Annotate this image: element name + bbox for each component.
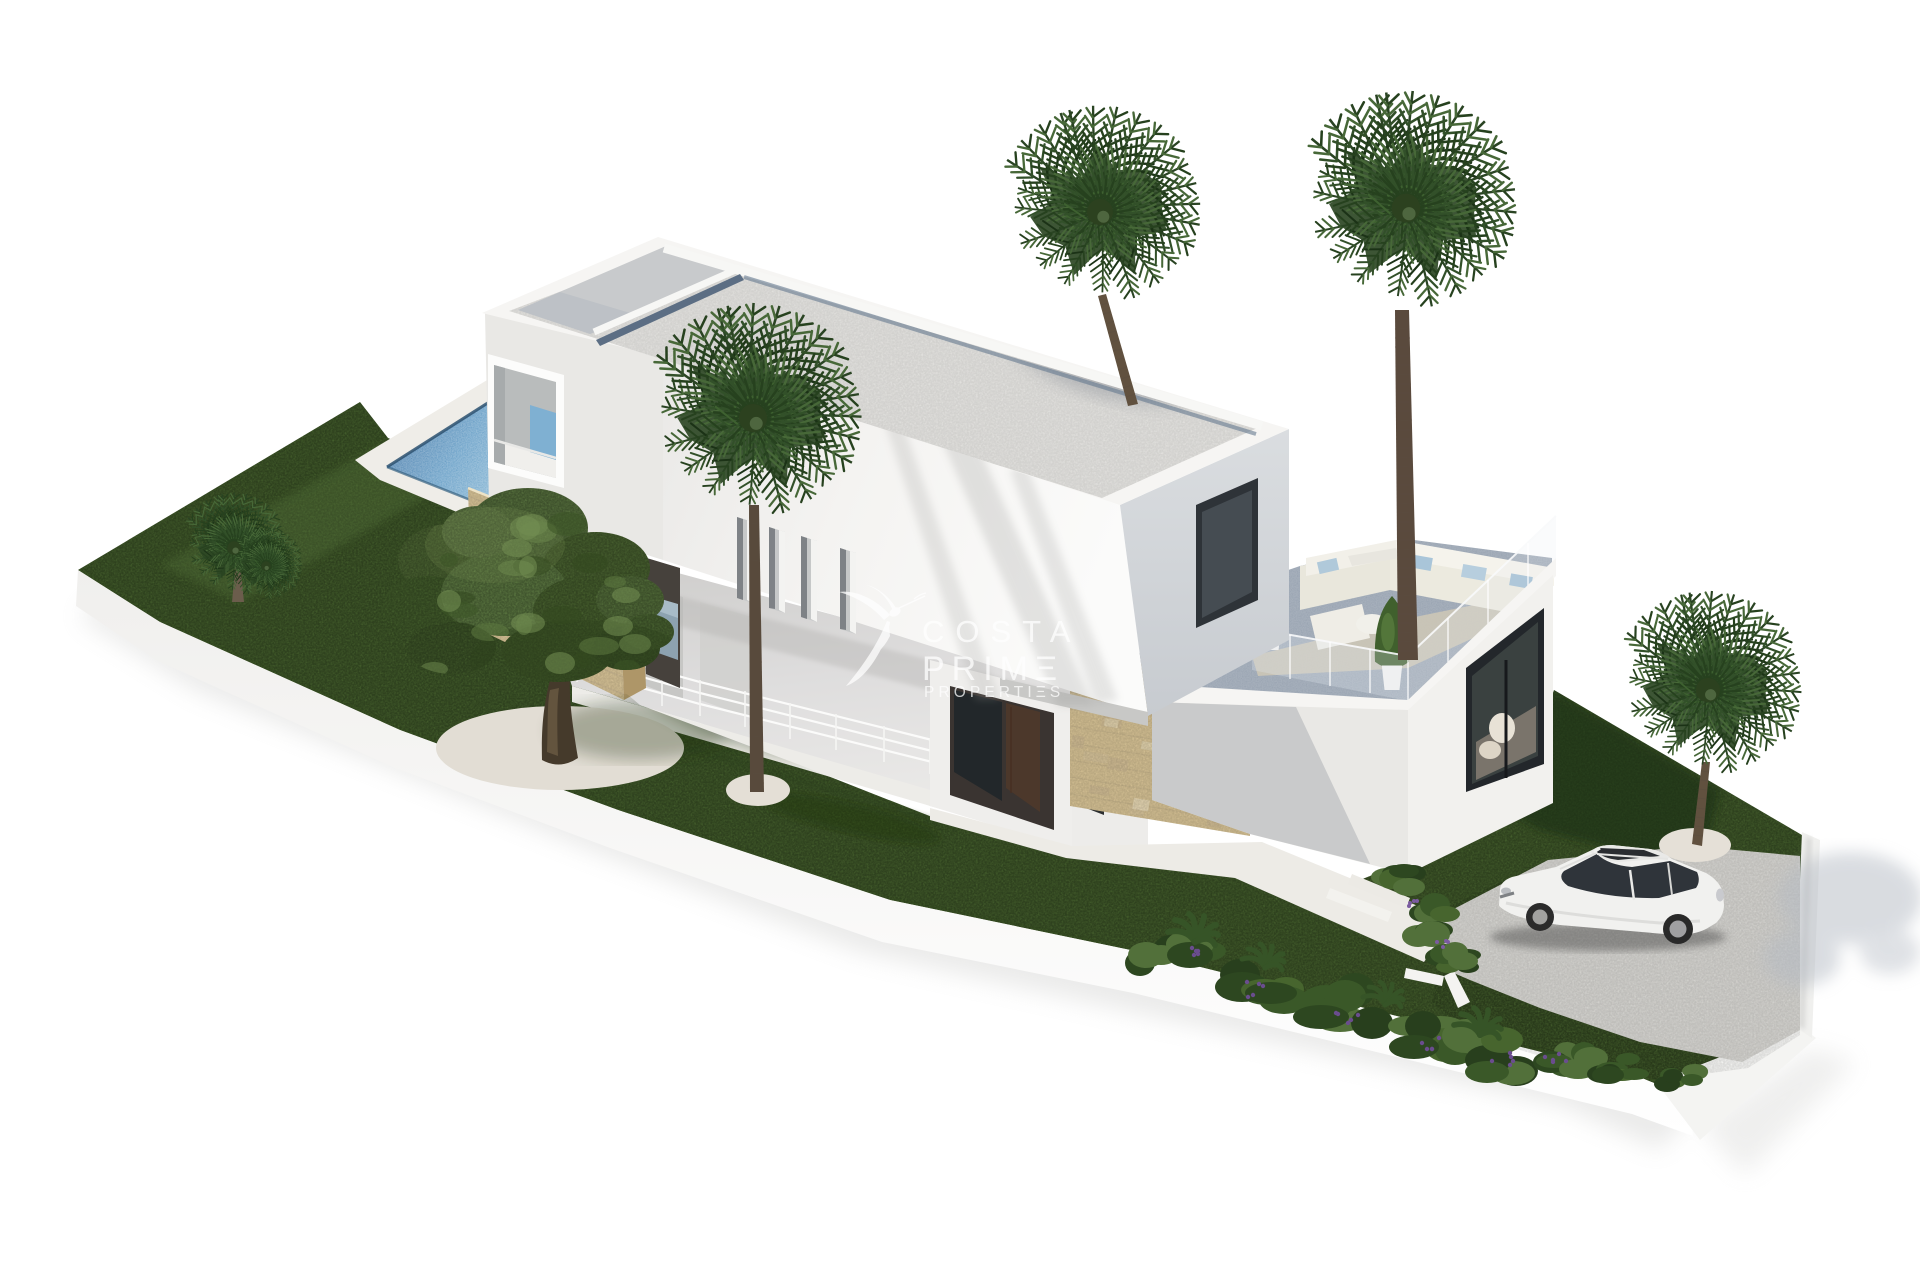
svg-text:PRIMΞ: PRIMΞ — [922, 650, 1064, 688]
svg-text:PROPERTIΞS: PROPERTIΞS — [924, 684, 1064, 701]
svg-text:COSTA: COSTA — [922, 614, 1082, 649]
